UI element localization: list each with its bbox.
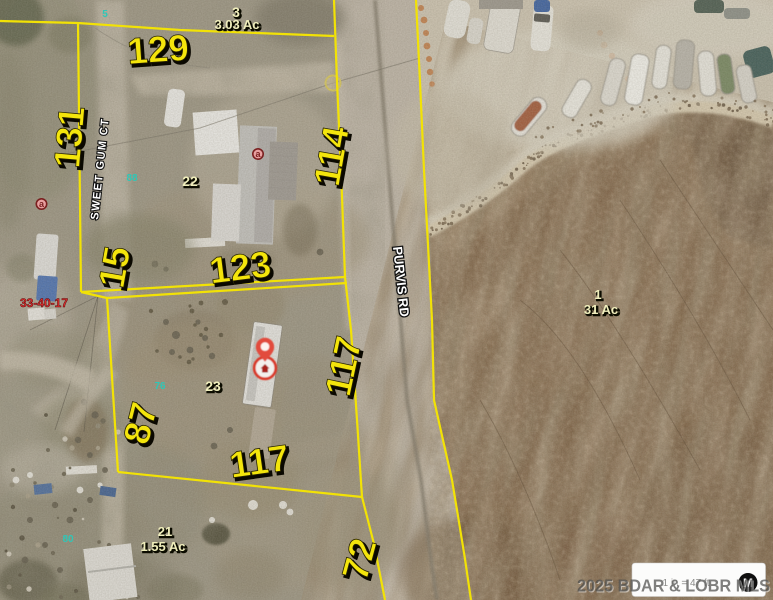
svg-text:80: 80 (62, 534, 74, 545)
svg-text:15: 15 (91, 243, 139, 291)
svg-text:76: 76 (154, 381, 166, 392)
svg-text:129: 129 (126, 27, 190, 72)
svg-text:2025 BDAR & LOBR MLS: 2025 BDAR & LOBR MLS (577, 576, 770, 596)
svg-text:3.03 Ac: 3.03 Ac (214, 17, 259, 32)
svg-text:88: 88 (126, 173, 138, 184)
svg-text:21: 21 (158, 524, 172, 539)
svg-text:5: 5 (102, 9, 108, 20)
svg-text:33-40-17: 33-40-17 (20, 296, 68, 310)
svg-text:22: 22 (182, 173, 198, 189)
svg-text:1: 1 (594, 287, 601, 302)
svg-text:31 Ac: 31 Ac (584, 302, 618, 317)
svg-text:117: 117 (227, 437, 292, 486)
svg-text:23: 23 (205, 378, 221, 394)
svg-text:131: 131 (46, 105, 92, 170)
svg-text:123: 123 (207, 243, 273, 291)
svg-text:1.55 Ac: 1.55 Ac (140, 539, 185, 554)
